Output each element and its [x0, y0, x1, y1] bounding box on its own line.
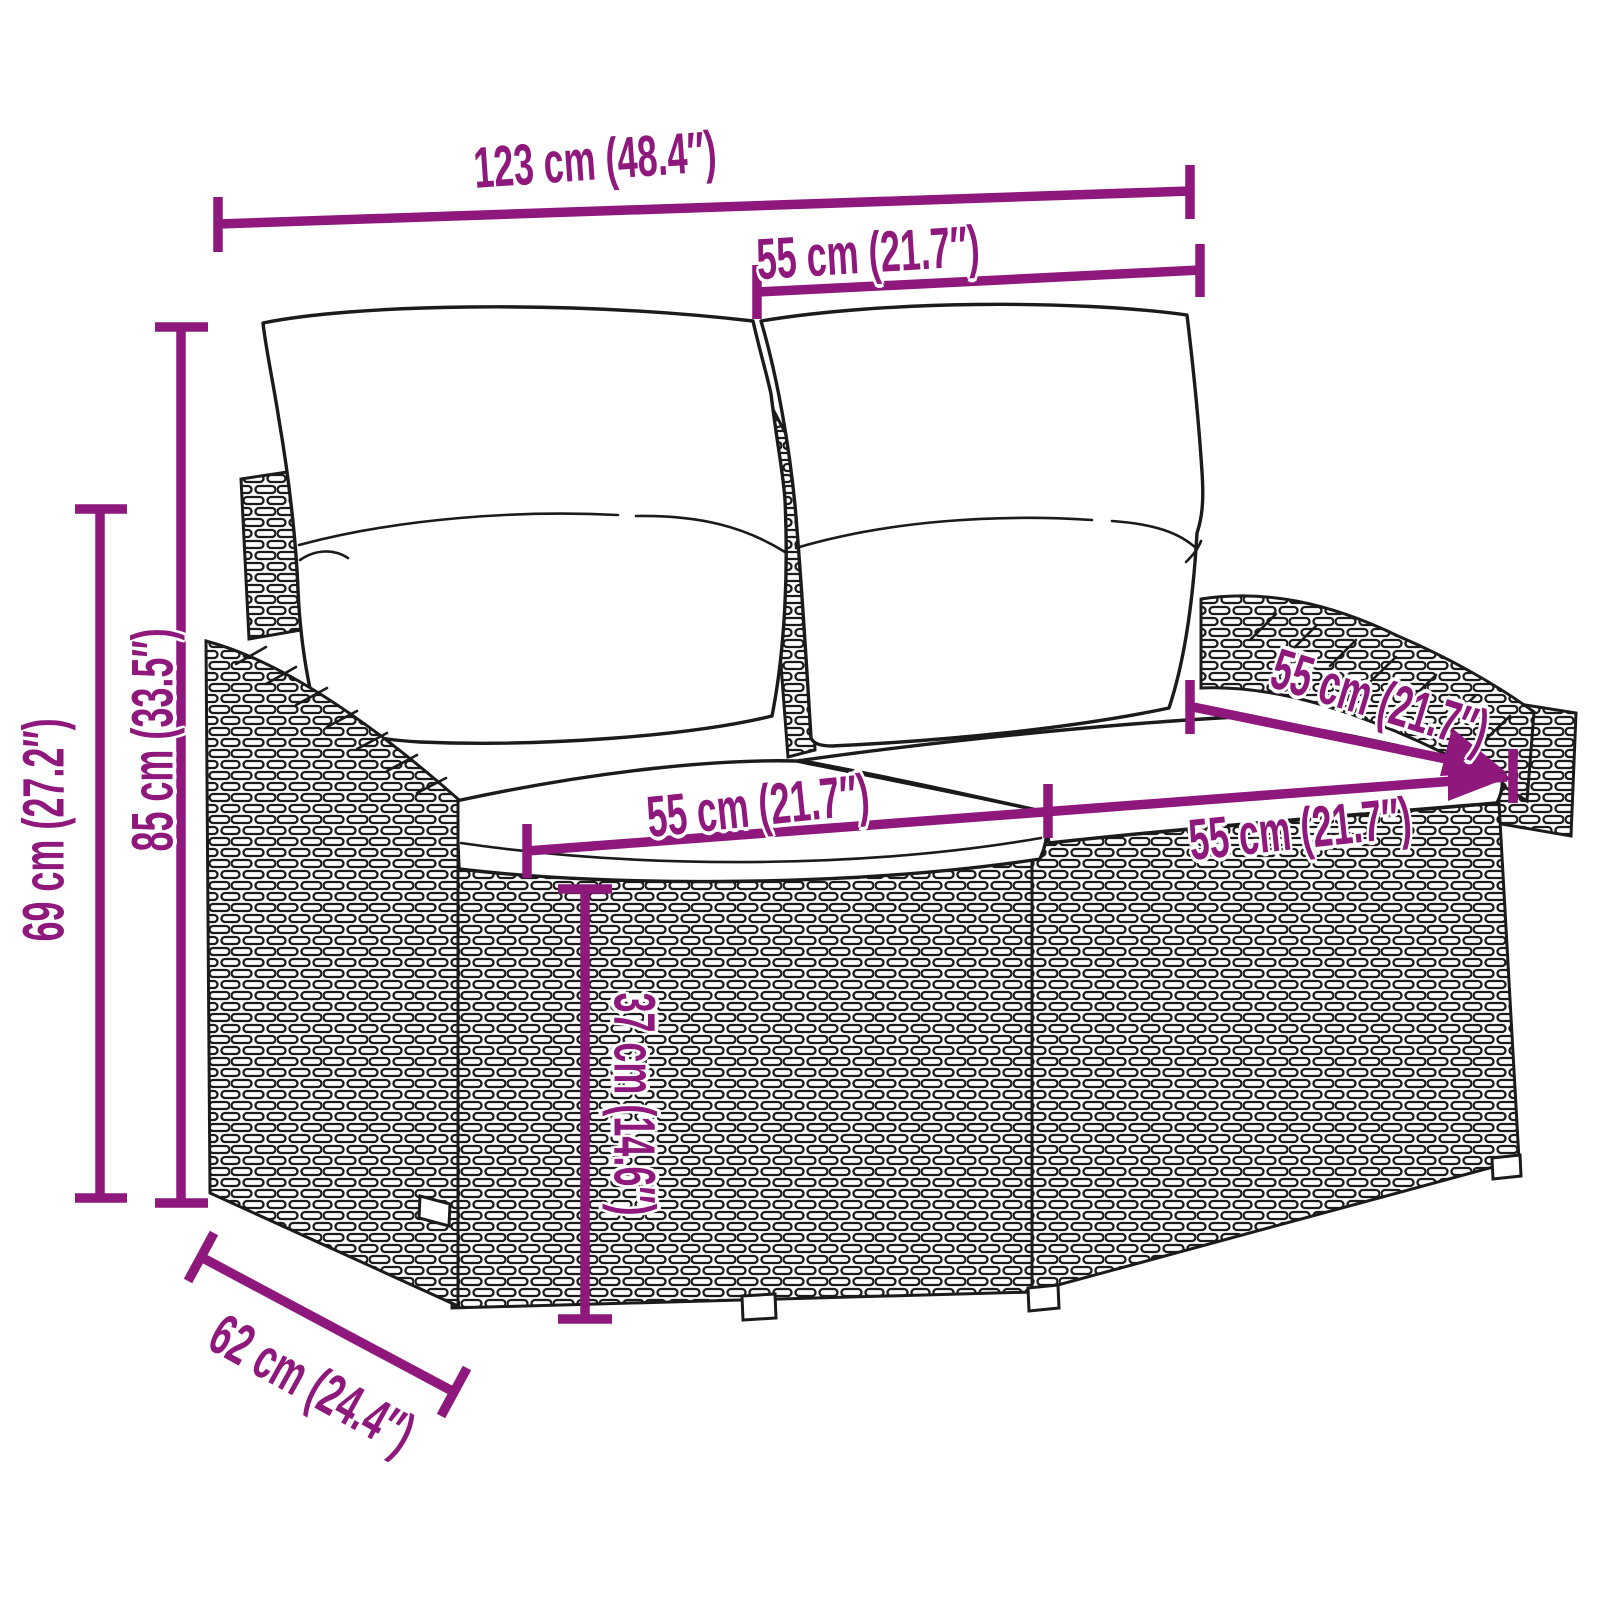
dim-line-armrest-height [75, 509, 127, 1198]
dim-label-armrest-height: 69 cm (27.2″) [11, 718, 78, 941]
seat-base-right [1032, 803, 1519, 1292]
back-cushion-right [761, 304, 1203, 746]
dim-label-total-height: 85 cm (33.5″) [120, 628, 187, 851]
dim-label-seat-height: 37 cm (14.6″) [601, 992, 668, 1215]
dimension-diagram: 123 cm (48.4″) 55 cm (21.7″) 85 cm (33.5… [0, 0, 1600, 1600]
seat-base-left [452, 843, 1032, 1308]
dim-label-backrest-cushion-width: 55 cm (21.7″) [755, 213, 982, 293]
back-cushion-left [263, 307, 786, 743]
